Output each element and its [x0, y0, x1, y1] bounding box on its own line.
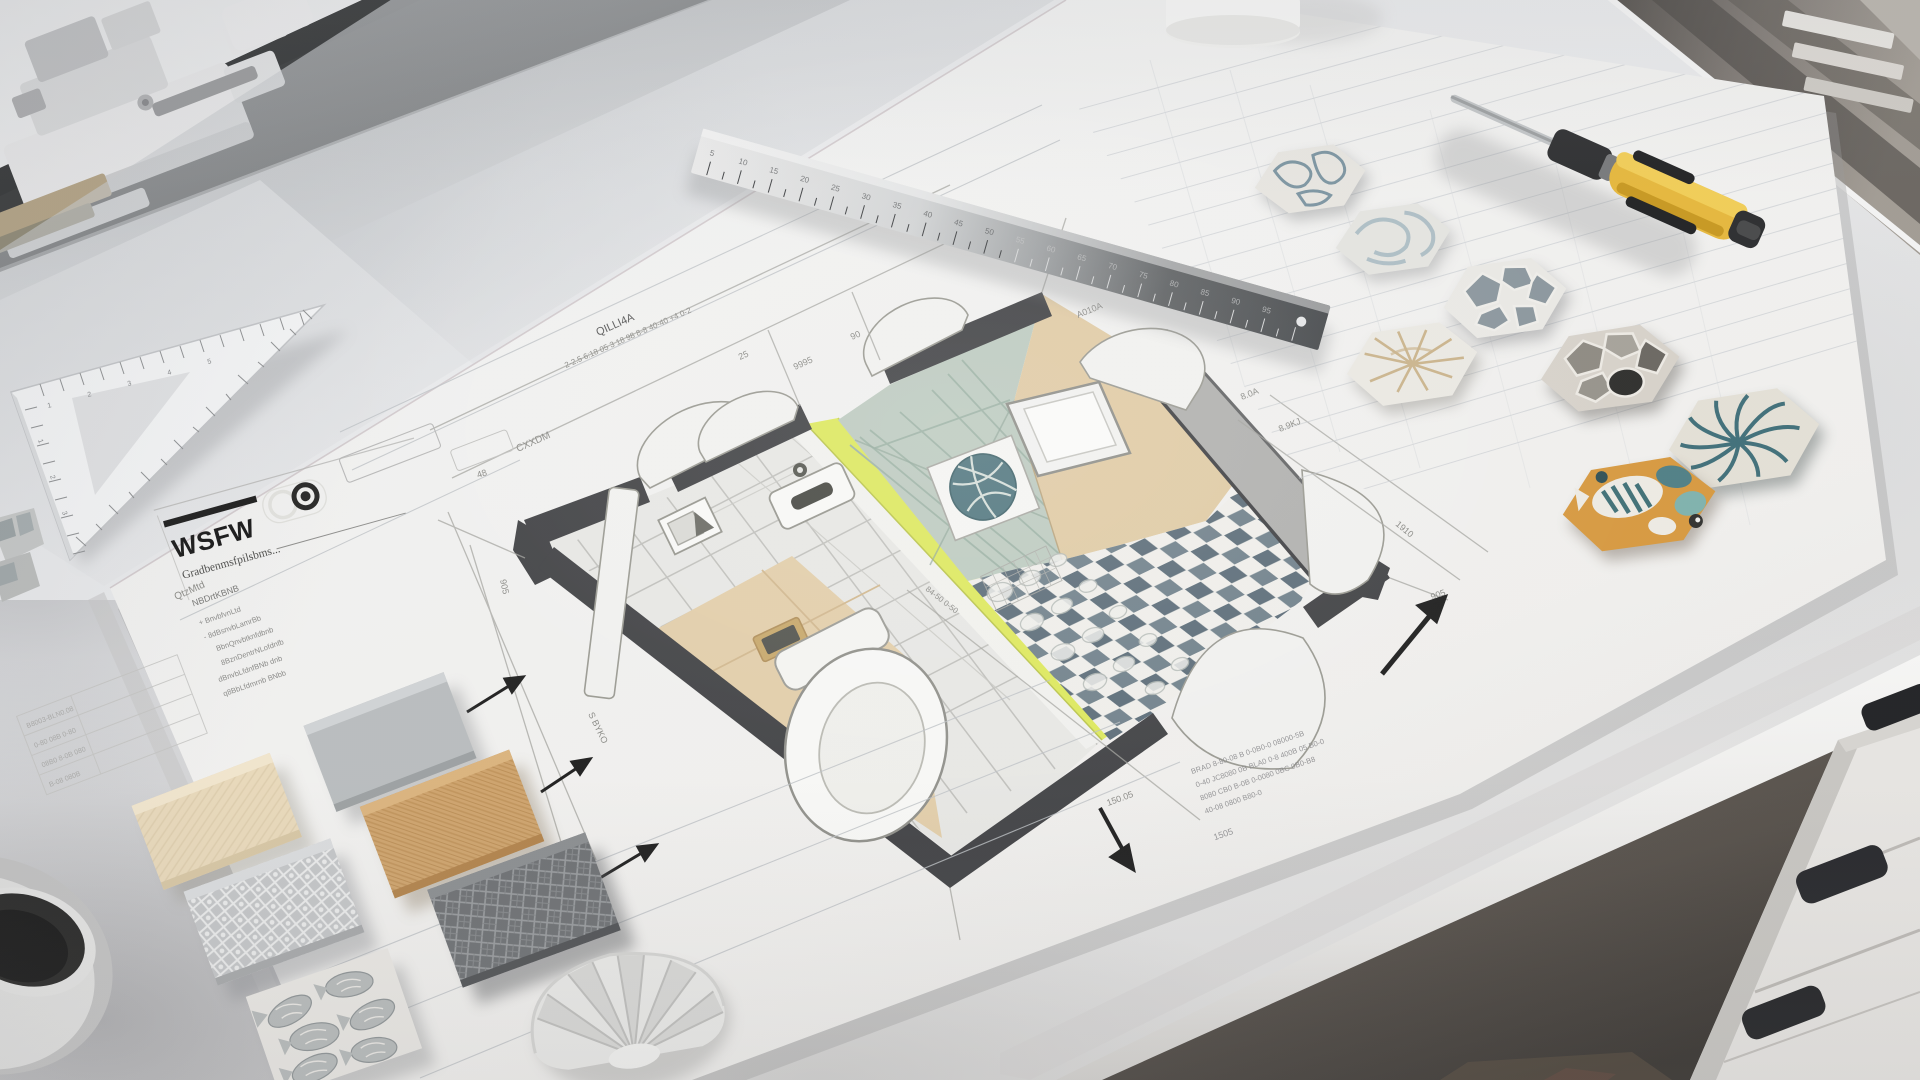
svg-text:150.05: 150.05	[1105, 789, 1134, 808]
svg-text:84-50 0-50: 84-50 0-50	[924, 584, 960, 615]
svg-text:905: 905	[498, 578, 511, 595]
svg-text:CXXDM: CXXDM	[515, 430, 552, 455]
svg-text:1505: 1505	[1212, 826, 1234, 842]
svg-text:48: 48	[476, 467, 489, 480]
